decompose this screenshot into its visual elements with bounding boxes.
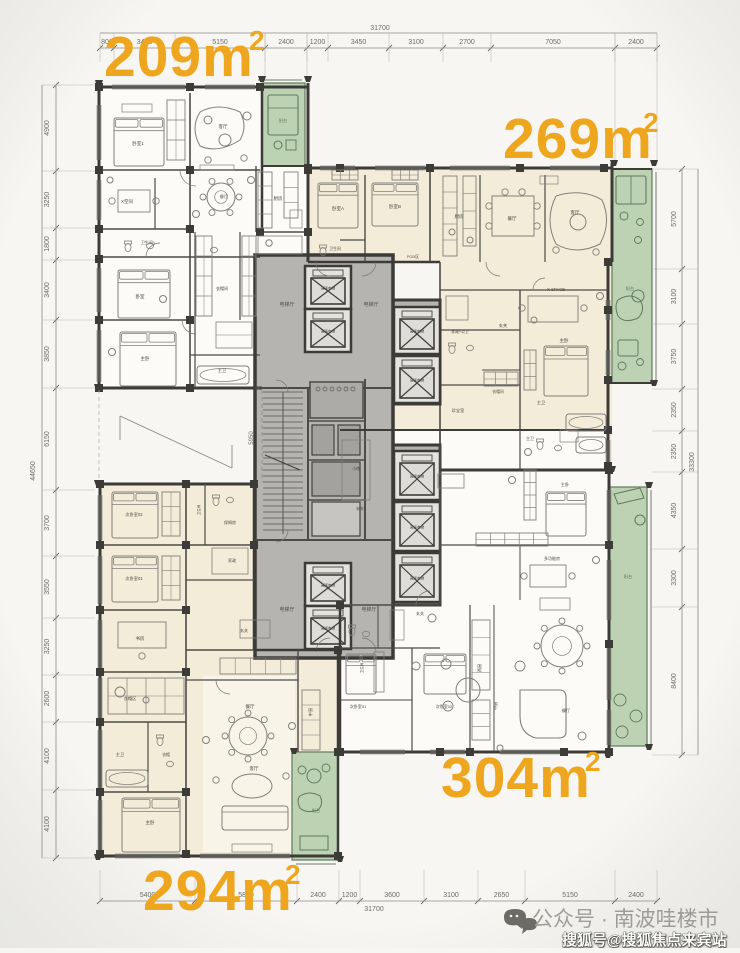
svg-text:玄关: 玄关: [240, 627, 248, 633]
svg-text:卧室A: 卧室A: [332, 205, 344, 212]
svg-text:餐厅: 餐厅: [508, 215, 517, 222]
svg-text:304m: 304m: [441, 746, 591, 810]
svg-text:1800: 1800: [44, 236, 51, 252]
svg-text:269m: 269m: [503, 107, 653, 171]
svg-text:家政: 家政: [228, 557, 236, 563]
svg-text:阳台: 阳台: [626, 285, 634, 292]
svg-text:次卧室02: 次卧室02: [436, 703, 453, 709]
svg-text:客厅: 客厅: [219, 123, 228, 130]
svg-text:珍宝室: 珍宝室: [452, 407, 465, 414]
svg-text:主卧: 主卧: [561, 481, 569, 488]
svg-text:31700: 31700: [364, 906, 384, 913]
svg-text:33300: 33300: [689, 452, 696, 472]
svg-text:2350: 2350: [671, 444, 678, 460]
svg-text:高速电梯: 高速电梯: [321, 583, 336, 588]
svg-text:高速电梯: 高速电梯: [410, 378, 425, 383]
svg-text:衣帽间: 衣帽间: [216, 285, 228, 291]
svg-text:多功能房: 多功能房: [544, 555, 560, 561]
svg-text:主卧: 主卧: [146, 819, 155, 826]
svg-text:3250: 3250: [44, 192, 51, 208]
svg-text:209m: 209m: [104, 25, 254, 89]
svg-text:2350: 2350: [671, 402, 678, 418]
svg-text:3550: 3550: [44, 579, 51, 595]
svg-text:高速电梯: 高速电梯: [410, 576, 425, 581]
svg-text:保姆房: 保姆房: [224, 519, 236, 525]
svg-text:2400: 2400: [278, 39, 294, 46]
svg-text:家政+公卫: 家政+公卫: [451, 329, 469, 334]
svg-text:厨房: 厨房: [274, 195, 283, 202]
svg-text:客厅: 客厅: [571, 209, 580, 216]
svg-text:4900: 4900: [44, 120, 51, 136]
svg-text:高速电梯: 高速电梯: [321, 626, 336, 631]
svg-text:玄关: 玄关: [416, 610, 424, 616]
svg-text:次卧室01: 次卧室01: [350, 703, 367, 709]
svg-text:卧室1: 卧室1: [132, 140, 144, 147]
svg-text:5700: 5700: [671, 211, 678, 227]
svg-text:3850: 3850: [44, 346, 51, 362]
svg-text:3750: 3750: [671, 349, 678, 365]
svg-text:餐厅: 餐厅: [220, 193, 228, 200]
svg-text:公众号 · 南波哇楼市: 公众号 · 南波哇楼市: [532, 908, 719, 931]
svg-text:电梯厅: 电梯厅: [279, 301, 294, 308]
svg-text:衣帽: 衣帽: [162, 752, 170, 757]
svg-text:玄关: 玄关: [499, 322, 507, 329]
svg-text:主卫: 主卫: [218, 367, 226, 373]
svg-text:1200: 1200: [310, 39, 326, 46]
svg-text:阳台: 阳台: [312, 807, 320, 814]
svg-text:2: 2: [285, 859, 301, 890]
svg-text:餐厅: 餐厅: [562, 707, 570, 714]
svg-text:X-SPACE: X-SPACE: [547, 287, 565, 292]
svg-text:阳台: 阳台: [279, 117, 287, 124]
svg-text:3300: 3300: [671, 570, 678, 586]
svg-text:餐厅: 餐厅: [246, 703, 255, 710]
svg-text:衣帽间: 衣帽间: [492, 389, 504, 394]
svg-text:厨房: 厨房: [455, 213, 464, 220]
svg-text:客厅: 客厅: [250, 765, 259, 772]
svg-text:4100: 4100: [44, 816, 51, 832]
svg-text:1200: 1200: [342, 892, 358, 899]
svg-text:6150: 6150: [44, 431, 51, 447]
svg-text:卫生间: 卫生间: [196, 504, 201, 515]
svg-text:次卧室01: 次卧室01: [125, 575, 143, 582]
svg-text:8400: 8400: [671, 673, 678, 689]
svg-text:2: 2: [249, 25, 265, 56]
svg-text:两厨: 两厨: [476, 664, 482, 672]
svg-text:3250: 3250: [44, 639, 51, 655]
svg-text:卧室B: 卧室B: [389, 203, 401, 210]
svg-text:中厨: 中厨: [492, 702, 498, 710]
svg-text:阳台: 阳台: [624, 573, 632, 580]
svg-text:3100: 3100: [671, 289, 678, 305]
svg-text:4100: 4100: [44, 748, 51, 764]
svg-text:电梯厅: 电梯厅: [363, 301, 378, 308]
svg-text:2400: 2400: [628, 39, 644, 46]
svg-text:2400: 2400: [628, 892, 644, 899]
svg-text:X空间: X空间: [121, 198, 134, 205]
svg-text:高速电梯: 高速电梯: [410, 329, 425, 334]
svg-text:2650: 2650: [494, 892, 510, 899]
svg-text:3400: 3400: [44, 282, 51, 298]
svg-text:31700: 31700: [370, 25, 390, 32]
svg-text:POD区: POD区: [407, 255, 419, 259]
svg-text:衣帽区: 衣帽区: [124, 695, 137, 702]
svg-text:3100: 3100: [443, 892, 459, 899]
svg-text:卧室: 卧室: [136, 293, 145, 300]
svg-text:主卫: 主卫: [526, 435, 534, 441]
svg-text:3700: 3700: [44, 515, 51, 531]
svg-text:书房: 书房: [136, 635, 145, 642]
svg-text:3450: 3450: [351, 39, 367, 46]
svg-text:2700: 2700: [459, 39, 475, 46]
svg-text:主卫: 主卫: [116, 751, 124, 757]
svg-text:小棺: 小棺: [352, 466, 360, 471]
svg-text:2: 2: [643, 107, 659, 138]
svg-text:3600: 3600: [384, 892, 400, 899]
svg-text:主卧: 主卧: [141, 355, 150, 362]
svg-text:5950: 5950: [249, 431, 255, 445]
svg-text:电梯厅: 电梯厅: [279, 606, 294, 613]
svg-text:电梯厅: 电梯厅: [361, 606, 376, 613]
svg-text:高速电梯: 高速电梯: [321, 329, 336, 334]
svg-text:高速电梯: 高速电梯: [321, 286, 336, 291]
svg-text:高速电梯: 高速电梯: [410, 474, 425, 479]
svg-text:玄关: 玄关: [356, 505, 364, 511]
svg-text:主卫: 主卫: [537, 399, 545, 405]
svg-text:高速电梯: 高速电梯: [410, 525, 425, 530]
svg-text:44650: 44650: [30, 461, 37, 481]
svg-text:294m: 294m: [143, 859, 293, 923]
svg-text:7050: 7050: [545, 39, 561, 46]
svg-text:搜狐号@搜狐焦点来宾站: 搜狐号@搜狐焦点来宾站: [562, 931, 727, 948]
svg-text:2400: 2400: [310, 892, 326, 899]
svg-text:主卧: 主卧: [560, 337, 569, 344]
svg-text:2600: 2600: [44, 691, 51, 707]
svg-text:卫生间1: 卫生间1: [141, 239, 156, 245]
svg-text:中厨: 中厨: [307, 708, 314, 716]
svg-text:2: 2: [585, 746, 601, 777]
svg-text:卫生间: 卫生间: [329, 246, 341, 251]
svg-text:4350: 4350: [671, 503, 678, 519]
svg-text:次卧室02: 次卧室02: [125, 511, 143, 518]
svg-text:卫生间: 卫生间: [359, 662, 364, 673]
svg-text:3100: 3100: [408, 39, 424, 46]
svg-text:5150: 5150: [562, 892, 578, 899]
